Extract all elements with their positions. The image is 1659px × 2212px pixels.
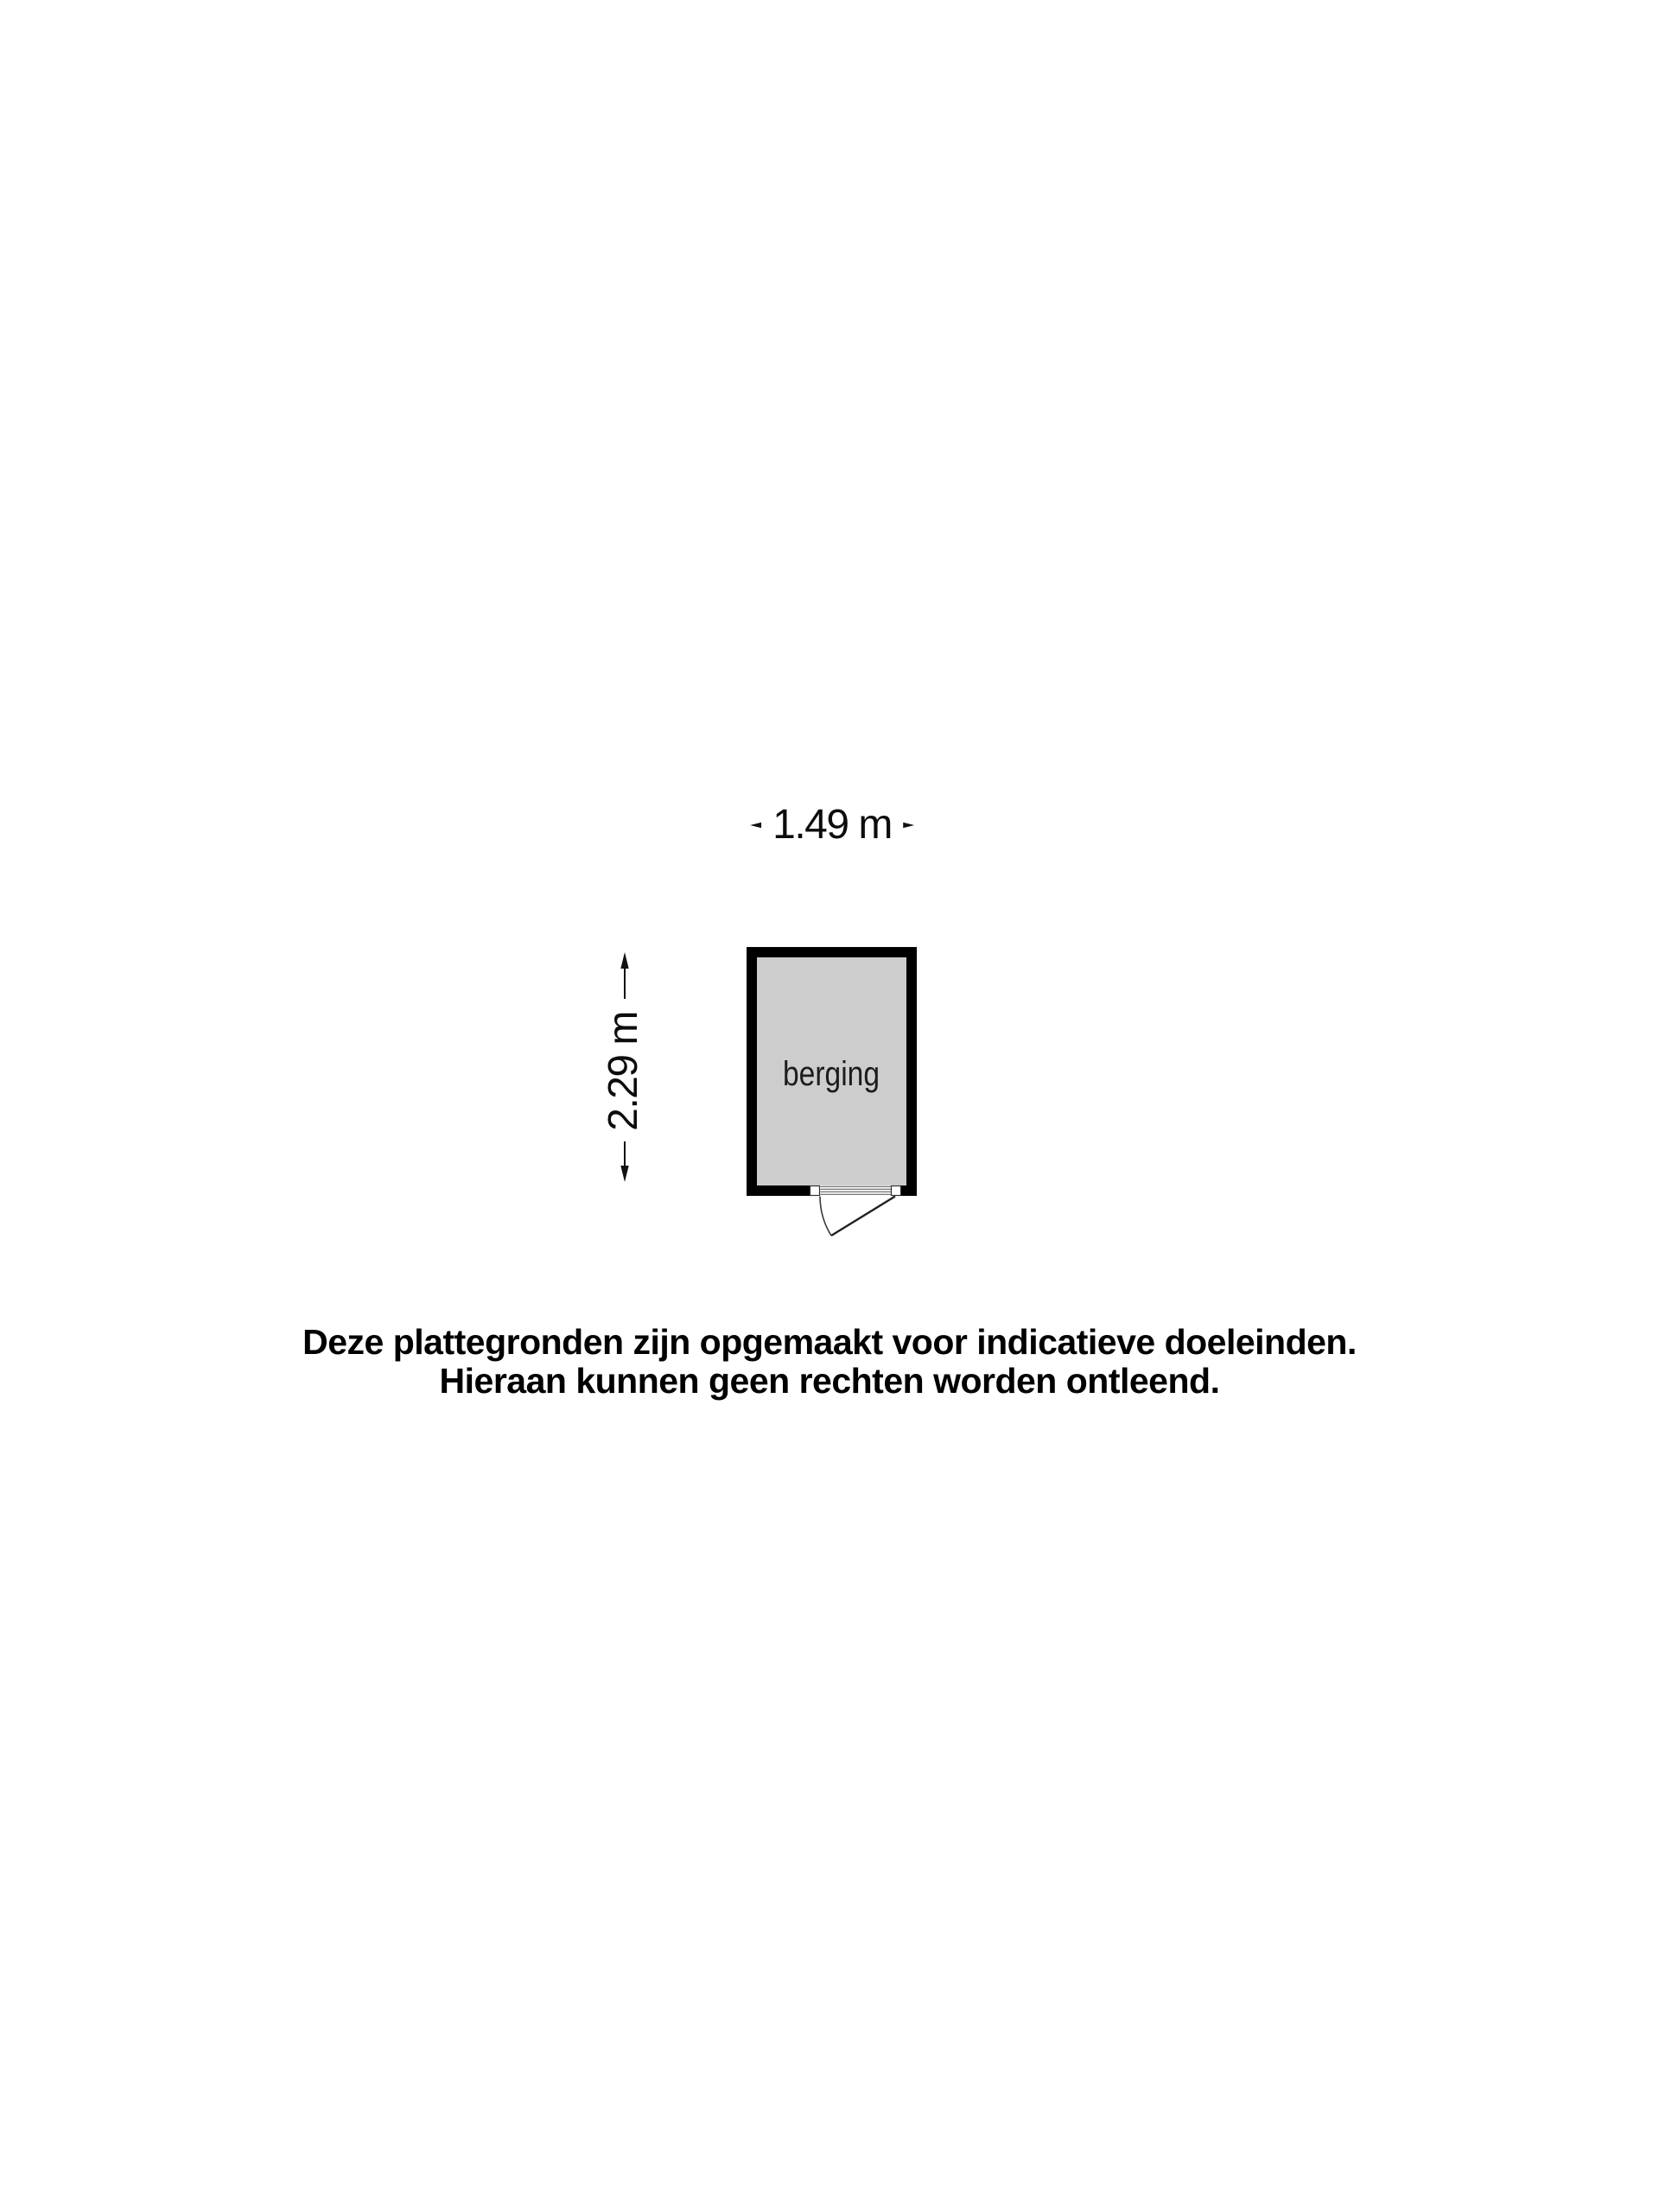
width-dimension: 1.49 m xyxy=(750,804,914,846)
disclaimer-line2: Hieraan kunnen geen rechten worden ontle… xyxy=(0,1362,1659,1401)
door-jamb-right xyxy=(892,1186,901,1196)
height-dimension-label: 2.29 m xyxy=(603,1012,645,1131)
floorplan-page: 1.49 m 2.29 m berging Deze plattegronden… xyxy=(0,0,1659,2212)
door-swing xyxy=(799,1182,916,1244)
room-label: berging xyxy=(783,1057,880,1091)
dimension-arrow-down-icon xyxy=(620,1166,628,1182)
width-dimension-label: 1.49 m xyxy=(772,804,892,846)
dimension-arrow-right-icon xyxy=(903,822,914,829)
dimension-arrow-up-icon xyxy=(620,952,628,969)
door-leaf xyxy=(831,1197,895,1236)
disclaimer-line1: Deze plattegronden zijn opgemaakt voor i… xyxy=(0,1323,1659,1362)
door-jamb-left xyxy=(810,1186,820,1196)
disclaimer: Deze plattegronden zijn opgemaakt voor i… xyxy=(0,1323,1659,1401)
door-swing-arc xyxy=(820,1197,831,1236)
dimension-arrow-left-icon xyxy=(750,822,761,829)
